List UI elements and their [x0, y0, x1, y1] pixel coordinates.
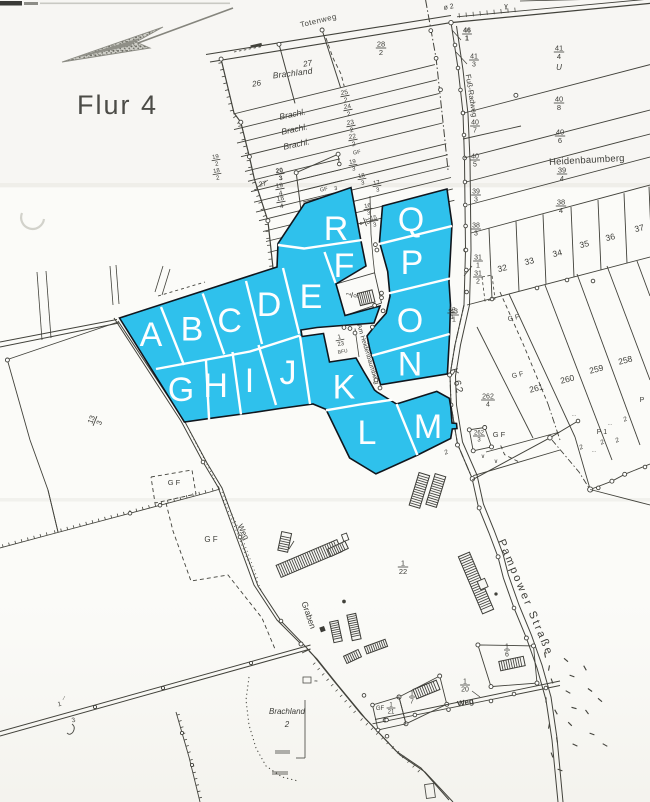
- svg-text:F: F: [334, 247, 355, 285]
- svg-text:R: R: [324, 210, 349, 248]
- svg-text:H: H: [203, 367, 228, 405]
- svg-text:40: 40: [471, 120, 479, 127]
- svg-text:2: 2: [284, 720, 290, 729]
- svg-text:1: 1: [450, 314, 454, 321]
- svg-text:P: P: [401, 244, 424, 282]
- svg-text:ɣ: ɣ: [504, 3, 508, 10]
- svg-text:I: I: [245, 362, 254, 400]
- svg-text:1: 1: [465, 36, 469, 43]
- svg-text:G F: G F: [204, 535, 217, 544]
- svg-text:O: O: [397, 302, 423, 340]
- svg-text:4: 4: [559, 206, 563, 215]
- svg-text:...: ...: [608, 421, 612, 427]
- svg-text:6: 6: [505, 652, 509, 659]
- svg-text:J: J: [280, 354, 297, 392]
- svg-text:20: 20: [461, 687, 469, 694]
- svg-text:262: 262: [482, 394, 494, 401]
- svg-text:∨: ∨: [481, 454, 485, 460]
- svg-text:6: 6: [558, 136, 562, 145]
- svg-text:4: 4: [557, 52, 561, 61]
- svg-text:39: 39: [472, 189, 480, 196]
- svg-text:1: 1: [505, 644, 509, 651]
- svg-text:46: 46: [463, 28, 471, 35]
- svg-text:E: E: [300, 278, 323, 316]
- svg-text:G: G: [168, 371, 194, 409]
- svg-text:7: 7: [410, 699, 414, 706]
- svg-text:40: 40: [471, 154, 479, 161]
- svg-text:K: K: [333, 369, 356, 407]
- svg-text:∨: ∨: [494, 459, 498, 465]
- svg-text:B: B: [181, 311, 204, 349]
- svg-text:P: P: [640, 397, 645, 404]
- svg-text:3: 3: [474, 197, 478, 204]
- svg-text:3: 3: [472, 62, 476, 69]
- svg-text:7: 7: [473, 128, 477, 135]
- svg-text:M: M: [414, 408, 442, 446]
- svg-text:D: D: [257, 286, 282, 324]
- svg-text:Brachland: Brachland: [269, 707, 306, 716]
- svg-text:31: 31: [474, 255, 482, 262]
- svg-text:...: ...: [572, 412, 576, 418]
- svg-text:GF: GF: [376, 706, 385, 712]
- svg-text:L: L: [358, 414, 377, 452]
- svg-text:2: 2: [379, 48, 383, 57]
- svg-text:31: 31: [474, 271, 482, 278]
- svg-text:3: 3: [474, 231, 478, 238]
- svg-text:P 1: P 1: [597, 429, 607, 436]
- svg-text:5: 5: [473, 162, 477, 169]
- svg-text:...: ...: [592, 448, 596, 454]
- svg-text:G F: G F: [493, 430, 506, 439]
- svg-text:22: 22: [399, 567, 407, 576]
- svg-text:Q: Q: [398, 201, 424, 239]
- svg-text:38: 38: [472, 223, 480, 230]
- svg-text:4: 4: [486, 402, 490, 409]
- svg-text:A: A: [140, 316, 163, 354]
- svg-text:1: 1: [476, 263, 480, 270]
- svg-text:G F: G F: [168, 478, 181, 487]
- svg-text:21: 21: [388, 710, 395, 716]
- svg-text:43: 43: [448, 307, 456, 314]
- svg-text:41: 41: [470, 54, 478, 61]
- svg-text:N: N: [398, 346, 423, 384]
- svg-text:2: 2: [476, 279, 480, 286]
- svg-text:C: C: [217, 302, 242, 340]
- svg-text:1: 1: [463, 679, 467, 686]
- svg-text:Flur 4: Flur 4: [77, 90, 158, 120]
- svg-text:U: U: [556, 63, 562, 72]
- svg-text:8: 8: [557, 103, 561, 112]
- svg-text:4: 4: [560, 174, 564, 183]
